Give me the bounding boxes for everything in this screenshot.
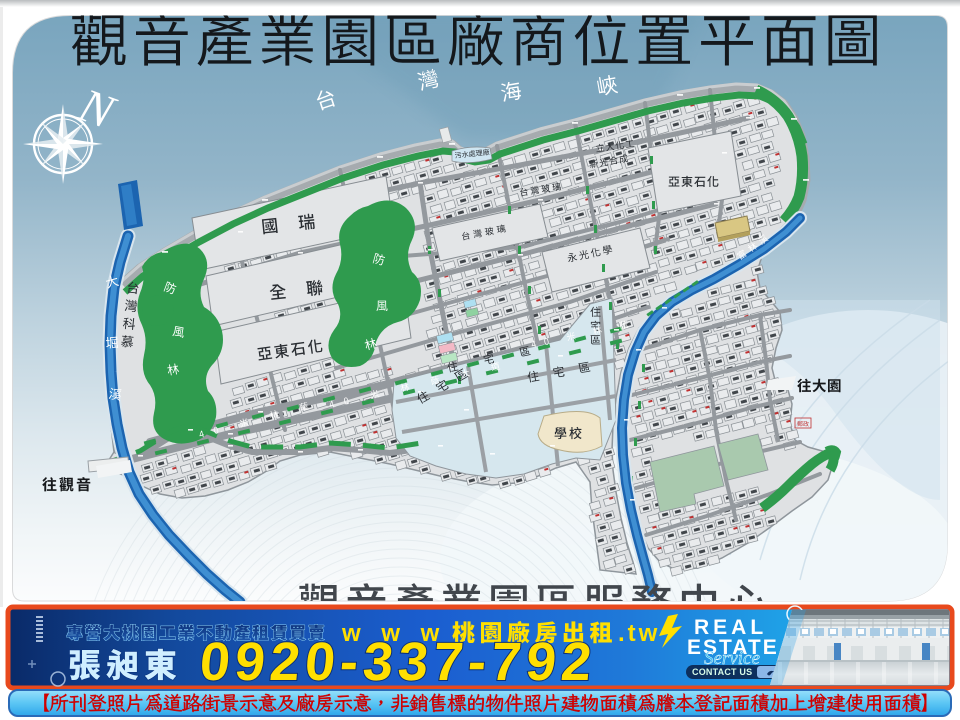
svg-text:0920-337-792: 0920-337-792 bbox=[197, 632, 598, 692]
svg-text:.tw: .tw bbox=[618, 620, 660, 647]
svg-text:CONTACT US: CONTACT US bbox=[692, 667, 752, 677]
